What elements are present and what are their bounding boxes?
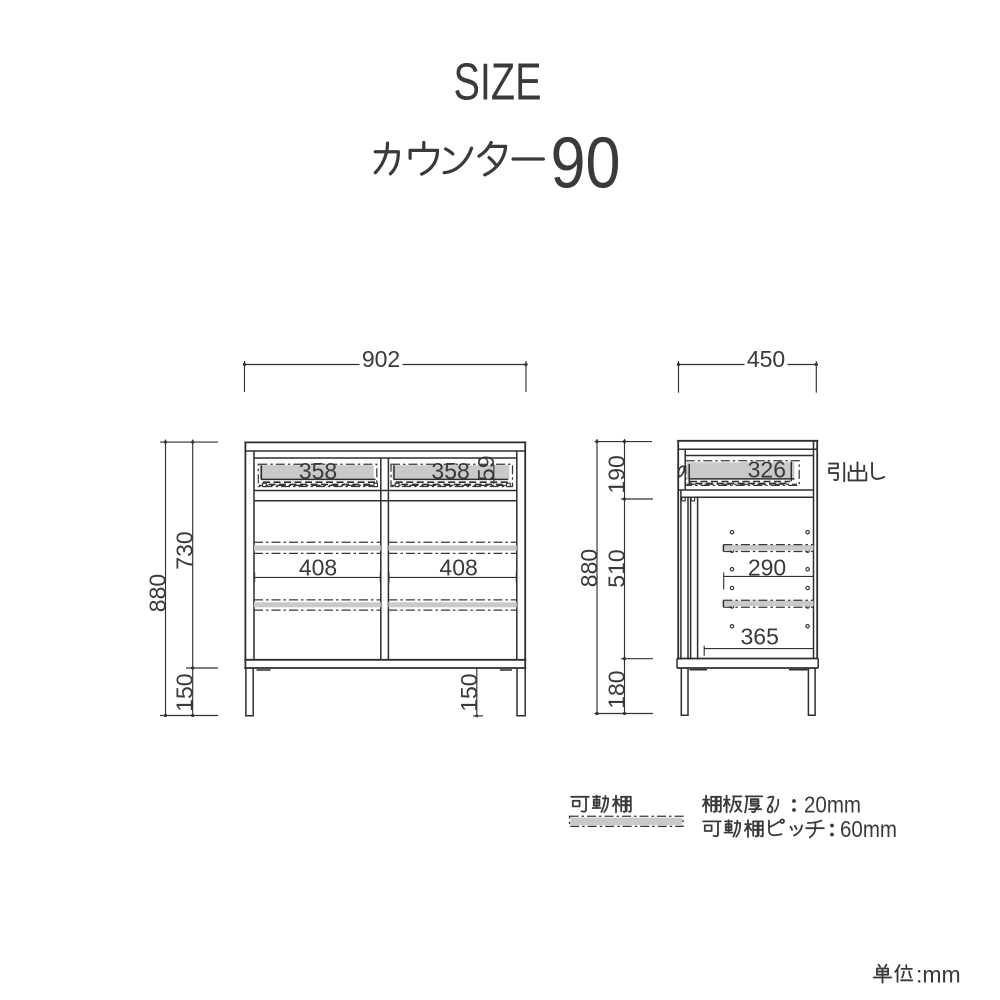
svg-text:365: 365 xyxy=(741,624,779,650)
svg-text:SIZE: SIZE xyxy=(454,54,542,112)
svg-text:290: 290 xyxy=(748,554,786,580)
svg-text:880: 880 xyxy=(145,574,171,612)
svg-text:450: 450 xyxy=(747,346,785,372)
svg-text:902: 902 xyxy=(362,346,400,372)
svg-text::mm: :mm xyxy=(916,962,961,988)
svg-text:90: 90 xyxy=(551,124,621,204)
svg-text:180: 180 xyxy=(604,670,630,708)
svg-text:60mm: 60mm xyxy=(840,816,897,842)
svg-text:880: 880 xyxy=(576,549,602,587)
svg-text:358: 358 xyxy=(299,458,337,484)
svg-text:510: 510 xyxy=(604,549,630,587)
svg-text:326: 326 xyxy=(748,456,786,482)
svg-text:730: 730 xyxy=(172,531,198,569)
svg-text:408: 408 xyxy=(439,555,477,581)
svg-text:190: 190 xyxy=(604,455,630,493)
svg-text:408: 408 xyxy=(299,555,337,581)
svg-text:59: 59 xyxy=(473,456,499,482)
svg-text:358: 358 xyxy=(431,458,469,484)
svg-text:20mm: 20mm xyxy=(804,792,861,818)
svg-text:150: 150 xyxy=(456,673,482,711)
svg-text:150: 150 xyxy=(172,673,198,711)
